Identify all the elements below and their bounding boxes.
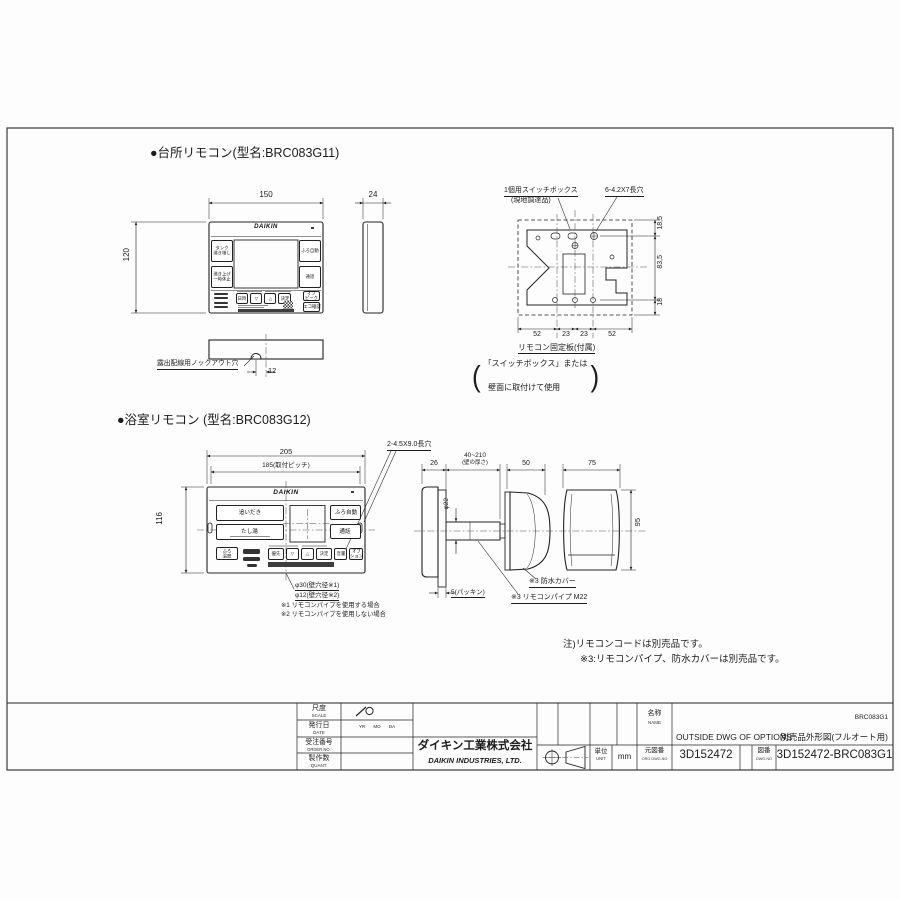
packing-label: 5(パッキン) [451,589,485,598]
kitchen-btn-offpeak: オフ ピーク [303,291,320,301]
tb-name-label-jp: 名称 [637,710,672,718]
tb-model-small: BRC083G1 [790,714,888,722]
tb-dwg-label-en: DWG.NO [752,757,776,762]
kitchen-warning-strip [238,309,294,312]
tb-name-label-en: NAME [637,720,672,725]
tb-date-value: YR MO DA [341,724,413,729]
switchbox-slots-label: 6-4.2X7長穴 [605,187,644,197]
kitchen-btn-talk: 通話 [299,266,321,288]
tb-company-jp: ダイキン工業株式会社 [413,740,537,754]
bath-daikin-logo: DAIKIN [256,489,316,496]
dim-switchbox-b4: 52 [602,331,622,339]
dim-cover-width: 75 [577,460,607,468]
kitchen-qr-code [283,301,293,310]
bath-section-label: ●浴室リモコン (型名:BRC083G12) [117,413,311,428]
tb-scale-label-en: SCALE [297,713,341,718]
dim-bath-height: 116 [155,512,165,525]
dim-cover-height: 95 [633,518,642,526]
paren-close: ) [590,358,599,394]
kitchen-side-view [363,222,383,313]
bath-btn-bath-auto: ふろ自動 [330,505,361,520]
dim-switchbox-b2: 23 [558,331,574,339]
kitchen-btn-tank-reheat: タンク 沸き増し [211,240,233,262]
drawing-linework [0,0,900,900]
dim-wall-range: 40~210 [447,452,503,460]
paren-open: ( [472,358,481,394]
dim-switchbox-bottom: 18 [657,298,665,306]
bath-btn-up: △ [301,548,314,560]
dim-cover-depth: 50 [512,460,540,468]
projection-symbol [543,747,588,769]
bath-btn-add-water: たし湯 [216,524,284,540]
tb-unit-label-en: UNIT [590,756,612,761]
kitchen-microtext-line [238,307,264,308]
kitchen-btn-up: △ [264,293,276,304]
note-sold-separately-2: ※3:リモコンパイプ、防水カバーは別売品です。 [580,654,785,665]
tb-orgdwg-label-en: ORG DWG.NO [637,757,672,762]
switchbox-sublabel: (現地調達品) [511,197,551,205]
kitchen-microtext-line [238,305,268,306]
bath-btn-temp: ふろ 温度 [216,547,238,560]
dim-side-depth: 26 [423,460,445,468]
dim-pipe-diameter: φ22 [443,498,451,509]
usage-line1: 「スイッチボックス」または [484,359,588,368]
sheet-frame [7,128,893,770]
bath-btn-down: ▽ [286,548,299,560]
tb-orgdwg-value: 3D152472 [672,749,740,763]
bath-speaker-slot [247,564,257,567]
dim-bath-pitch: 185(取付ピッチ) [236,462,336,470]
knockout-label: 露出配線用ノックアウト穴 [157,360,238,370]
kitchen-btn-eco: エコ確認 [303,302,320,312]
dim-switchbox-b1: 52 [527,331,547,339]
tb-date-label-en: DATE [297,730,341,735]
dim-wall-caption: (壁の厚さ) [447,460,503,467]
kitchen-btn-pause: 沸き上げ 一時休止 [211,266,233,288]
usage-line2: 壁面に取付けて使用 [488,383,560,392]
dim-bath-width: 205 [271,447,301,456]
bath-btn-priority: 優先 [268,548,284,560]
bath-btn-option: オプ ション [349,548,363,560]
tb-unit-value: mm [612,752,637,762]
kitchen-btn-date: 日時 [236,293,248,304]
bath-speaker-slot [243,549,260,554]
dim-kitchen-depth: 24 [353,190,393,200]
remote-pipe-label: ※3 リモコンパイプ M22 [511,594,587,604]
waterproof-cover-label: ※3 防水カバー [529,578,576,588]
kitchen-bottom-view [209,334,323,377]
bath-btn-subtext-line [230,536,270,537]
bath-note2: ※2 リモコンパイプを使用しない場合 [281,611,386,619]
switchbox-label: 1個用スイッチボックス [504,187,578,197]
scale-symbol [356,707,373,716]
drawing-sheet: ●台所リモコン(型名:BRC083G11) 150 24 120 露出配線用ノッ… [0,0,900,900]
dim-kitchen-width: 150 [246,190,286,200]
tb-order-label-en: ORDER NO. [297,747,341,752]
tb-unit-label-jp: 単位 [590,748,612,756]
bath-indicator-mark [351,491,354,493]
bath-hole12-label: φ12(壁穴径※2) [295,592,339,601]
bath-slot-label: 2-4.5X9.0長穴 [387,441,431,451]
dim-switchbox-top: 18,5 [657,216,665,230]
tb-title-jp: 別売品外形図(フルオート用) [775,732,888,742]
tb-dwg-label-jp: 図番 [752,747,776,755]
bath-warning-strip [268,562,334,567]
bath-btn-reheat: 追いだき [216,505,284,521]
bath-speaker-slot [243,557,260,562]
fixing-plate-label: リモコン固定板(付属) [518,343,595,354]
fixing-plate-usage-note: ( 「スイッチボックス」または 壁面に取付けて使用 ) [472,358,599,394]
note-sold-separately-1: 注)リモコンコードは別売品です。 [563,639,708,650]
kitchen-speaker-slot [214,293,228,295]
kitchen-daikin-logo: DAIKIN [234,224,298,230]
bath-front-view [181,450,396,589]
bath-btn-volume: 音量 [334,548,347,560]
tb-orgdwg-label-jp: 元図番 [637,747,672,755]
dim-switchbox-b3: 23 [576,331,592,339]
tb-dwg-value: 3D152472-BRC083G1 [776,749,893,763]
switchbox-view [508,197,660,338]
dim-kitchen-height: 120 [122,248,132,261]
kitchen-speaker-slot [214,302,228,304]
bath-btn-talk: 通話 [330,524,361,539]
kitchen-speaker-slot [214,306,228,308]
dim-knockout-offset: 12 [268,366,276,375]
tb-order-label-jp: 受注番号 [297,739,341,747]
bath-note1: ※1 リモコンパイプを使用する場合 [281,602,380,610]
kitchen-btn-bath-auto: ふろ自動 [299,240,321,262]
tb-company-en: DAIKIN INDUSTRIES, LTD. [413,756,537,765]
tb-qty-label-en: QUANT. [297,763,341,768]
kitchen-btn-down: ▽ [250,293,262,304]
dim-switchbox-mid: 83,5 [657,255,665,269]
bath-btn-ok: 決定 [316,548,332,560]
bath-hole30-label: φ30(壁穴径※1) [295,582,339,591]
kitchen-indicator-mark [311,227,314,229]
kitchen-section-label: ●台所リモコン(型名:BRC083G11) [150,146,339,161]
